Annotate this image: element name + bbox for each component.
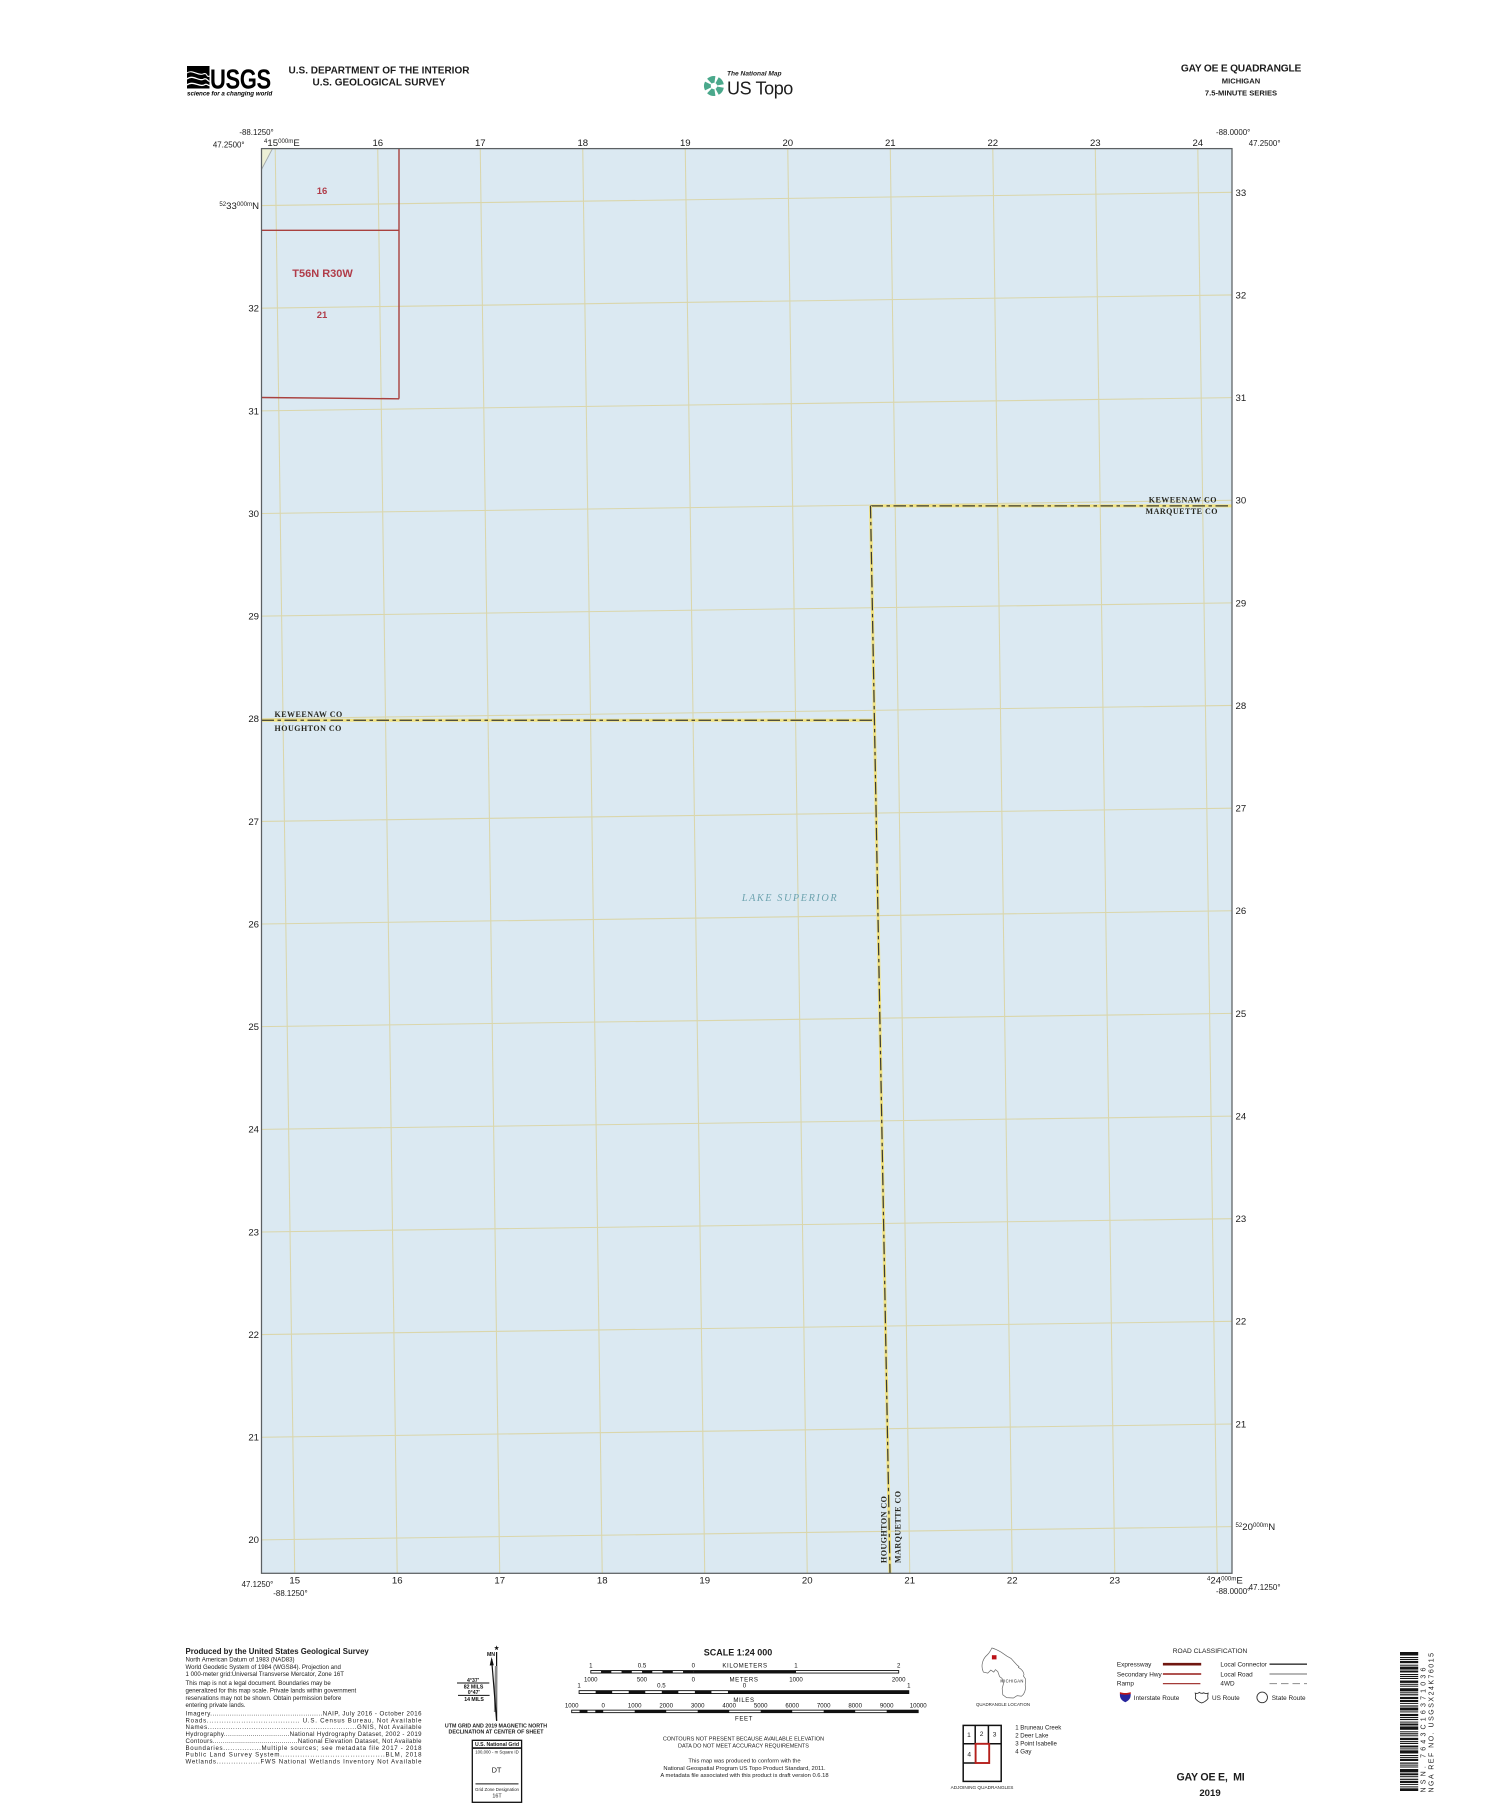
svg-text:MARQUETTE CO: MARQUETTE CO <box>894 1491 903 1563</box>
svg-text:1: 1 <box>794 1662 798 1669</box>
svg-text:2000: 2000 <box>659 1702 673 1709</box>
svg-text:424000mE: 424000mE <box>1207 1576 1243 1587</box>
svg-text:National Geospatial Program US: National Geospatial Program US Topo Prod… <box>663 1766 826 1772</box>
svg-text:KEWEENAW CO: KEWEENAW CO <box>275 710 343 719</box>
svg-text:1000: 1000 <box>584 1676 598 1683</box>
svg-text:21: 21 <box>248 1433 259 1444</box>
svg-text:29: 29 <box>1236 598 1247 609</box>
svg-text:3000: 3000 <box>691 1702 705 1709</box>
svg-text:20: 20 <box>802 1576 813 1587</box>
svg-text:47.1250°: 47.1250° <box>1249 1583 1281 1592</box>
svg-text:1000: 1000 <box>628 1702 642 1709</box>
svg-text:2: 2 <box>897 1662 901 1669</box>
svg-text:0.5: 0.5 <box>638 1662 647 1669</box>
svg-text:24: 24 <box>1236 1111 1247 1122</box>
svg-text:0: 0 <box>743 1683 747 1690</box>
svg-text:23: 23 <box>248 1227 259 1238</box>
svg-text:23: 23 <box>1090 138 1101 149</box>
svg-text:18: 18 <box>577 138 588 149</box>
svg-text:1000: 1000 <box>565 1702 579 1709</box>
svg-text:7.5-MINUTE SERIES: 7.5-MINUTE SERIES <box>1205 89 1277 98</box>
svg-text:T56N R30W: T56N R30W <box>292 268 353 280</box>
svg-text:Ramp: Ramp <box>1117 1681 1134 1688</box>
svg-text:A metadata file associated wit: A metadata file associated with this pro… <box>660 1773 828 1779</box>
svg-text:24: 24 <box>1192 138 1203 149</box>
svg-text:DT: DT <box>492 1766 502 1775</box>
svg-text:NSN. 7643C16371036: NSN. 7643C16371036 <box>1421 1664 1428 1792</box>
svg-text:25: 25 <box>1236 1009 1247 1020</box>
svg-text:MICHIGAN: MICHIGAN <box>1000 1678 1023 1683</box>
svg-text:SCALE 1:24 000: SCALE 1:24 000 <box>704 1647 773 1657</box>
svg-text:ADJOINING QUADRANGLES: ADJOINING QUADRANGLES <box>951 1785 1014 1790</box>
svg-text:16: 16 <box>372 138 383 149</box>
svg-text:32: 32 <box>248 304 259 315</box>
svg-text:entering private lands.: entering private lands. <box>186 1702 246 1709</box>
svg-text:0: 0 <box>602 1702 606 1709</box>
svg-text:29: 29 <box>248 612 259 623</box>
svg-text:US Topo: US Topo <box>727 79 793 99</box>
svg-text:2: 2 <box>980 1731 984 1738</box>
svg-text:MICHIGAN: MICHIGAN <box>1222 77 1260 86</box>
svg-text:5000: 5000 <box>754 1702 768 1709</box>
svg-text:ROAD CLASSIFICATION: ROAD CLASSIFICATION <box>1173 1648 1248 1655</box>
svg-text:14 MILS: 14 MILS <box>464 1697 484 1703</box>
svg-text:4: 4 <box>967 1752 971 1759</box>
svg-text:State Route: State Route <box>1272 1695 1306 1702</box>
svg-text:MILES: MILES <box>733 1697 754 1704</box>
svg-text:10000: 10000 <box>910 1702 928 1709</box>
svg-text:0.5: 0.5 <box>657 1683 666 1690</box>
svg-text:21: 21 <box>885 138 896 149</box>
svg-text:DECLINATION AT CENTER OF SHEET: DECLINATION AT CENTER OF SHEET <box>449 1730 545 1736</box>
svg-text:North American Datum of 1983 (: North American Datum of 1983 (NAD83) <box>186 1657 295 1664</box>
svg-text:Secondary Hwy: Secondary Hwy <box>1117 1671 1163 1678</box>
svg-text:19: 19 <box>699 1576 710 1587</box>
svg-text:23: 23 <box>1109 1576 1120 1587</box>
svg-text:generalized for this map scale: generalized for this map scale. Private … <box>186 1688 357 1695</box>
svg-text:1 Bruneau Creek: 1 Bruneau Creek <box>1015 1725 1062 1732</box>
svg-text:U.S. National Grid: U.S. National Grid <box>475 1742 519 1748</box>
svg-text:Interstate Route: Interstate Route <box>1134 1695 1180 1702</box>
svg-text:415000mE: 415000mE <box>264 138 300 149</box>
svg-text:U.S. DEPARTMENT OF THE INTERIO: U.S. DEPARTMENT OF THE INTERIOR <box>289 66 471 77</box>
svg-text:KEWEENAW CO: KEWEENAW CO <box>1149 496 1217 505</box>
svg-text:26: 26 <box>248 919 259 930</box>
svg-text:5220000mN: 5220000mN <box>1236 1522 1276 1533</box>
svg-text:-88.0000°: -88.0000° <box>1216 1587 1250 1596</box>
svg-text:GAY OE E, MI: GAY OE E, MI <box>1176 1772 1244 1784</box>
svg-text:MARQUETTE CO: MARQUETTE CO <box>1146 507 1218 516</box>
svg-text:U.S. GEOLOGICAL SURVEY: U.S. GEOLOGICAL SURVEY <box>313 78 446 89</box>
svg-text:22: 22 <box>987 138 998 149</box>
svg-text:Produced by the United States: Produced by the United States Geological… <box>186 1647 370 1656</box>
svg-text:47.1250°: 47.1250° <box>242 1580 274 1589</box>
svg-text:17: 17 <box>494 1576 505 1587</box>
svg-text:27: 27 <box>248 817 259 828</box>
svg-text:21: 21 <box>1236 1419 1247 1430</box>
svg-text:16T: 16T <box>492 1793 502 1799</box>
svg-text:Local Connector: Local Connector <box>1220 1662 1267 1669</box>
svg-text:QUADRANGLE LOCATION: QUADRANGLE LOCATION <box>976 1702 1030 1707</box>
svg-text:UTM GRID AND 2019 MAGNETIC NOR: UTM GRID AND 2019 MAGNETIC NORTH <box>445 1723 547 1729</box>
svg-text:6000: 6000 <box>785 1702 799 1709</box>
svg-text:KILOMETERS: KILOMETERS <box>722 1662 767 1669</box>
svg-text:GAY OE E QUADRANGLE: GAY OE E QUADRANGLE <box>1181 64 1302 75</box>
svg-text:Local Road: Local Road <box>1220 1671 1253 1678</box>
svg-text:16: 16 <box>392 1576 403 1587</box>
svg-text:FEET: FEET <box>735 1716 753 1723</box>
svg-text:20: 20 <box>248 1535 259 1546</box>
svg-text:1000: 1000 <box>789 1676 803 1683</box>
svg-text:0: 0 <box>692 1662 696 1669</box>
svg-text:28: 28 <box>248 714 259 725</box>
svg-text:8000: 8000 <box>848 1702 862 1709</box>
svg-text:7000: 7000 <box>817 1702 831 1709</box>
svg-text:LAKE SUPERIOR: LAKE SUPERIOR <box>741 893 838 904</box>
svg-text:reservations may not be shown.: reservations may not be shown. Obtain pe… <box>186 1695 342 1702</box>
svg-text:500: 500 <box>637 1676 648 1683</box>
svg-text:HOUGHTON CO: HOUGHTON CO <box>275 724 342 733</box>
svg-text:3: 3 <box>993 1731 997 1738</box>
svg-text:18: 18 <box>597 1576 608 1587</box>
svg-text:19: 19 <box>680 138 691 149</box>
svg-text:1: 1 <box>577 1683 581 1690</box>
svg-text:NGA REF NO. USGSX24K76015: NGA REF NO. USGSX24K76015 <box>1429 1652 1436 1793</box>
svg-text:15: 15 <box>289 1576 300 1587</box>
svg-text:1: 1 <box>967 1732 971 1739</box>
svg-text:33: 33 <box>1236 188 1247 199</box>
svg-text:This map is not a legal docume: This map is not a legal document. Bounda… <box>186 1680 332 1687</box>
svg-text:47.2500°: 47.2500° <box>213 141 245 150</box>
svg-text:17: 17 <box>475 138 486 149</box>
svg-text:20: 20 <box>782 138 793 149</box>
svg-text:28: 28 <box>1236 701 1247 712</box>
svg-text:DATA DO NOT MEET ACCURACY REQU: DATA DO NOT MEET ACCURACY REQUIREMENTS <box>678 1744 809 1750</box>
svg-text:47.2500°: 47.2500° <box>1249 139 1281 148</box>
svg-text:HOUGHTON CO: HOUGHTON CO <box>880 1496 889 1563</box>
svg-text:9000: 9000 <box>880 1702 894 1709</box>
svg-text:4WD: 4WD <box>1220 1681 1235 1688</box>
svg-text:32: 32 <box>1236 290 1247 301</box>
svg-text:-88.1250°: -88.1250° <box>239 128 273 137</box>
svg-text:26: 26 <box>1236 906 1247 917</box>
svg-text:World Geodetic System of 1984: World Geodetic System of 1984 (WGS84). P… <box>186 1664 341 1671</box>
svg-text:23: 23 <box>1236 1214 1247 1225</box>
svg-text:3 Point Isabelle: 3 Point Isabelle <box>1015 1741 1057 1748</box>
svg-text:-88.1250°: -88.1250° <box>273 1589 307 1598</box>
svg-text:Wetlands..................FWS: Wetlands..................FWS National W… <box>186 1758 423 1765</box>
svg-text:30: 30 <box>248 509 259 520</box>
svg-text:25: 25 <box>248 1022 259 1033</box>
svg-text:30: 30 <box>1236 496 1247 507</box>
svg-text:US Route: US Route <box>1212 1695 1240 1702</box>
svg-text:CONTOURS NOT PRESENT BECAUSE A: CONTOURS NOT PRESENT BECAUSE AVAILABLE E… <box>663 1737 824 1743</box>
svg-text:4 Gay: 4 Gay <box>1015 1749 1032 1756</box>
svg-text:31: 31 <box>1236 393 1247 404</box>
svg-text:science for a changing world: science for a changing world <box>187 91 272 98</box>
svg-text:24: 24 <box>248 1125 259 1136</box>
svg-text:31: 31 <box>248 406 259 417</box>
svg-text:21: 21 <box>317 310 328 321</box>
svg-text:This map was produced to confo: This map was produced to conform with th… <box>688 1759 800 1765</box>
svg-text:5233000mN: 5233000mN <box>219 201 259 212</box>
svg-text:2000: 2000 <box>892 1676 906 1683</box>
svg-text:0: 0 <box>692 1676 696 1683</box>
svg-text:1: 1 <box>589 1662 593 1669</box>
svg-text:27: 27 <box>1236 804 1247 815</box>
svg-text:22: 22 <box>1236 1317 1247 1328</box>
svg-text:4000: 4000 <box>722 1702 736 1709</box>
svg-text:Grid Zone Designation: Grid Zone Designation <box>475 1787 519 1792</box>
svg-text:MN: MN <box>487 1652 495 1658</box>
svg-text:Expressway: Expressway <box>1117 1662 1152 1669</box>
svg-text:2 Deer Lake: 2 Deer Lake <box>1015 1733 1049 1740</box>
svg-text:21: 21 <box>904 1576 915 1587</box>
svg-text:1 000-meter grid:Universal Tra: 1 000-meter grid:Universal Transverse Me… <box>186 1671 345 1678</box>
svg-text:1: 1 <box>907 1683 911 1690</box>
svg-text:-88.0000°: -88.0000° <box>1216 128 1250 137</box>
svg-text:16: 16 <box>317 186 328 197</box>
svg-text:2019: 2019 <box>1199 1788 1220 1799</box>
svg-text:The National Map: The National Map <box>727 71 782 78</box>
svg-text:100,000 - m Square ID: 100,000 - m Square ID <box>475 1749 518 1754</box>
svg-text:22: 22 <box>1007 1576 1018 1587</box>
svg-text:22: 22 <box>248 1330 259 1341</box>
